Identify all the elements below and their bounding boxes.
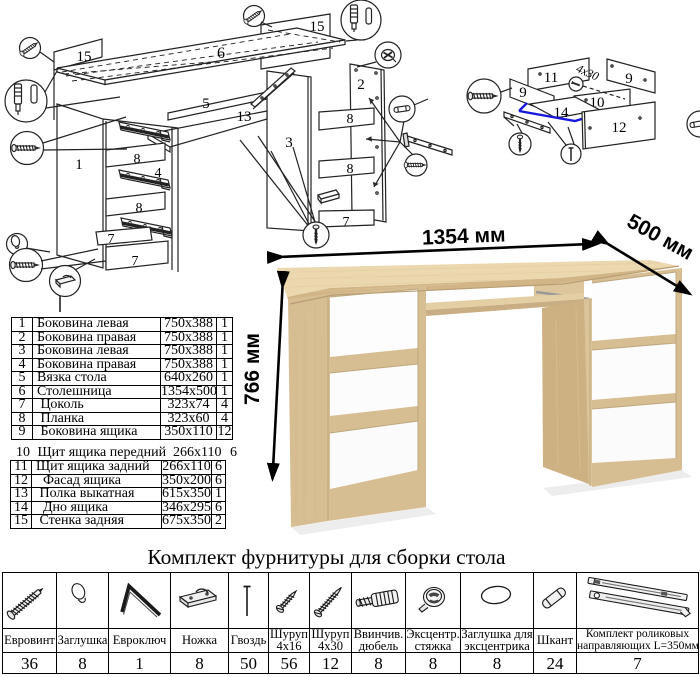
svg-text:7: 7: [132, 254, 139, 269]
svg-text:9: 9: [519, 85, 527, 101]
svg-text:15: 15: [77, 49, 92, 65]
svg-text:5: 5: [202, 96, 210, 112]
svg-text:3: 3: [285, 135, 293, 151]
svg-text:8: 8: [136, 201, 143, 216]
svg-text:8: 8: [347, 112, 354, 127]
svg-text:500 мм: 500 мм: [623, 210, 697, 265]
svg-text:6: 6: [217, 45, 225, 62]
svg-text:1354 мм: 1354 мм: [422, 223, 506, 249]
svg-text:7: 7: [108, 232, 115, 247]
svg-text:2: 2: [357, 77, 365, 93]
svg-text:7: 7: [343, 215, 350, 230]
svg-text:8: 8: [347, 162, 354, 177]
svg-text:8: 8: [134, 152, 141, 167]
svg-text:13: 13: [237, 109, 252, 125]
svg-text:1: 1: [75, 157, 83, 173]
svg-text:766 мм: 766 мм: [241, 333, 264, 405]
svg-text:11: 11: [544, 70, 558, 86]
svg-text:9: 9: [625, 71, 633, 87]
svg-text:12: 12: [612, 120, 627, 136]
svg-text:15: 15: [310, 19, 325, 35]
